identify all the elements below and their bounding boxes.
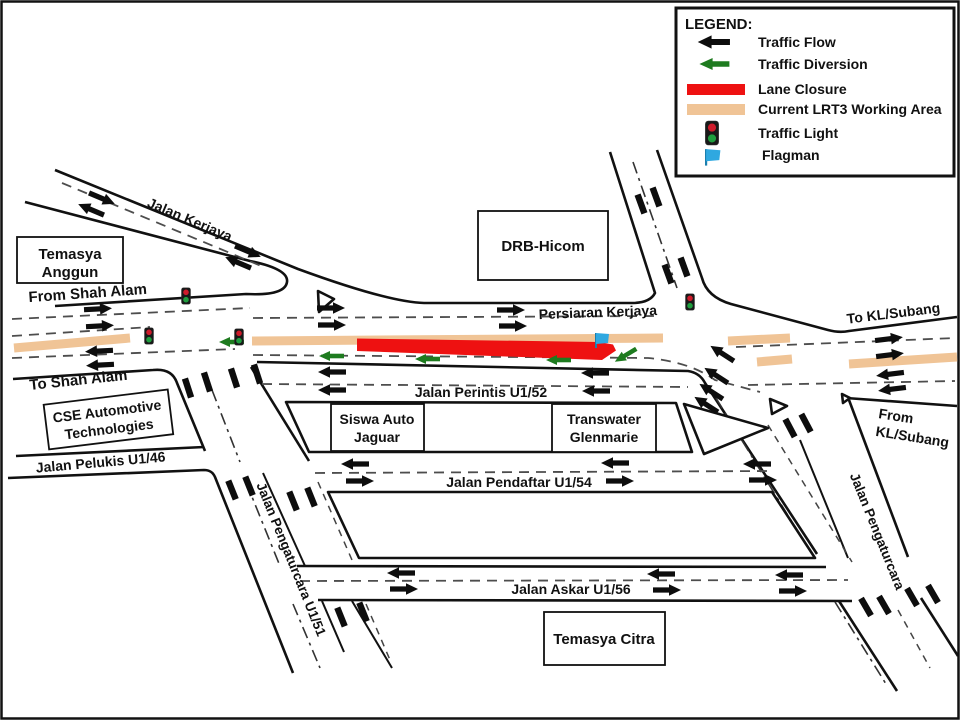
map-canvas: Jalan Kerjaya From Shah Alam To Shah Ala… bbox=[0, 0, 960, 720]
traffic-diversion-map: Jalan Kerjaya From Shah Alam To Shah Ala… bbox=[0, 0, 960, 720]
traffic-light-icon bbox=[234, 329, 243, 345]
svg-text:Jaguar: Jaguar bbox=[354, 429, 400, 445]
road-label-jalan-pendaftar: Jalan Pendaftar U1/54 bbox=[446, 474, 592, 490]
legend-item-label: Current LRT3 Working Area bbox=[758, 101, 942, 117]
place-box-drb-hicom: DRB-Hicom bbox=[478, 211, 608, 280]
working-area-swatch bbox=[687, 104, 745, 115]
traffic-light-icon bbox=[144, 328, 153, 344]
place-box-temasya-anggun: Temasya Anggun bbox=[17, 237, 123, 283]
traffic-light-icon bbox=[685, 294, 694, 310]
place-box-temasya-citra: Temasya Citra bbox=[544, 612, 665, 665]
svg-text:Anggun: Anggun bbox=[42, 264, 99, 281]
svg-text:Siswa Auto: Siswa Auto bbox=[340, 411, 415, 427]
traffic-light-icon bbox=[181, 288, 190, 304]
legend-item-label: Traffic Diversion bbox=[758, 56, 868, 72]
svg-text:Temasya Citra: Temasya Citra bbox=[553, 631, 655, 648]
road-label-jalan-perintis: Jalan Perintis U1/52 bbox=[415, 384, 548, 400]
lane-closure-swatch bbox=[687, 84, 745, 95]
road-label-jalan-askar: Jalan Askar U1/56 bbox=[511, 581, 631, 597]
svg-text:Temasya: Temasya bbox=[38, 246, 102, 263]
legend-item-label: Traffic Flow bbox=[758, 34, 836, 50]
legend-item-label: Lane Closure bbox=[758, 81, 847, 97]
traffic-light-icon bbox=[705, 121, 718, 145]
legend: LEGEND: Traffic Flow Traffic Diversion L… bbox=[676, 8, 954, 176]
svg-text:DRB-Hicom: DRB-Hicom bbox=[501, 238, 584, 255]
legend-title: LEGEND: bbox=[685, 16, 753, 33]
legend-item-label: Flagman bbox=[762, 147, 820, 163]
place-box-transwater-glenmarie: Transwater Glenmarie bbox=[552, 404, 656, 452]
legend-item-label: Traffic Light bbox=[758, 125, 838, 141]
svg-text:Transwater: Transwater bbox=[567, 411, 641, 427]
place-box-siswa-auto-jaguar: Siswa Auto Jaguar bbox=[331, 404, 424, 451]
svg-text:Glenmarie: Glenmarie bbox=[570, 429, 639, 445]
